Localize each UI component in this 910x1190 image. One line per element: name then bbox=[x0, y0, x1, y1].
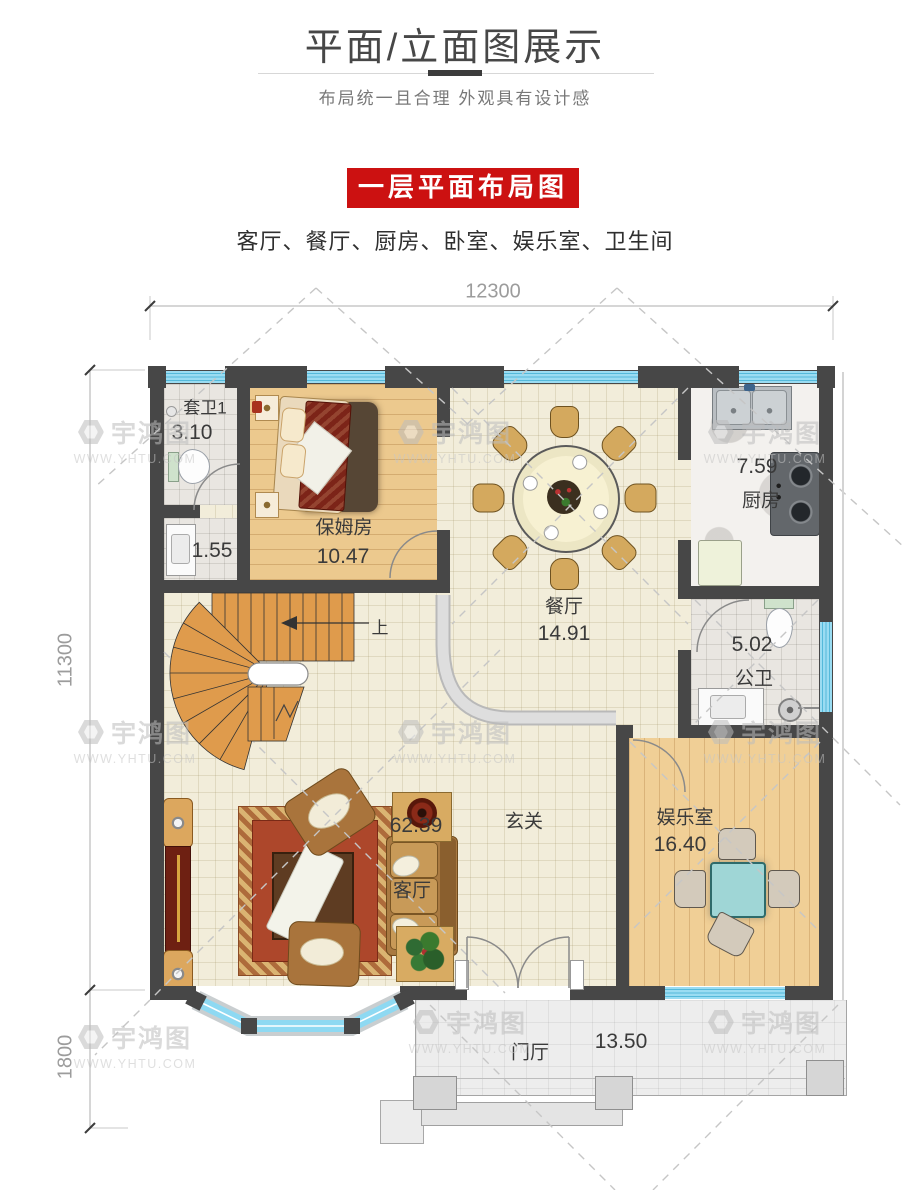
room-list-line: 客厅、餐厅、厨房、卧室、娱乐室、卫生间 bbox=[0, 224, 910, 256]
dining-chair bbox=[550, 558, 579, 590]
porch-column bbox=[413, 1076, 457, 1110]
window-bathroom-right bbox=[820, 622, 832, 712]
wall-pier bbox=[817, 366, 835, 388]
wall-bottom-segment bbox=[150, 986, 196, 1000]
potted-plant bbox=[400, 928, 448, 976]
floor-drain bbox=[166, 406, 177, 417]
watermark-logo-icon bbox=[78, 1024, 104, 1050]
page: 平面/立面图展示 布局统一且合理 外观具有设计感 一层平面布局图 客厅、餐厅、厨… bbox=[0, 0, 910, 1190]
bath-vanity-basin bbox=[710, 695, 746, 719]
porch-column bbox=[595, 1076, 633, 1110]
label-kitchen-area: 7.59 bbox=[737, 455, 778, 479]
porch-column bbox=[806, 1060, 844, 1096]
game-chair bbox=[674, 870, 706, 908]
nightstand bbox=[255, 492, 279, 518]
wall-nanny-dining-lower bbox=[437, 530, 450, 593]
tv-cabinet-cap bbox=[163, 798, 193, 848]
wall-stair-hall-top bbox=[150, 580, 450, 593]
window-top-nanny bbox=[307, 371, 387, 383]
wall-bottom-segment bbox=[785, 986, 833, 1000]
window-game-room-bottom bbox=[665, 987, 785, 999]
watermark-logo-icon bbox=[78, 719, 104, 745]
wash-basin bbox=[171, 534, 190, 564]
wall-ensuite-bottom bbox=[164, 505, 200, 518]
dining-chair bbox=[550, 406, 579, 438]
wall-kitchen-bath bbox=[678, 586, 833, 599]
wall-dining-kitchen-upper bbox=[678, 384, 691, 460]
kitchen-fridge bbox=[698, 540, 742, 586]
dining-chair bbox=[473, 484, 505, 513]
label-bath-name: 公卫 bbox=[735, 664, 773, 691]
label-porch-name: 门厅 bbox=[511, 1038, 549, 1065]
wall-foyer-game bbox=[616, 725, 629, 986]
label-game-area: 16.40 bbox=[654, 833, 707, 857]
label-bath-area: 5.02 bbox=[732, 633, 773, 657]
label-kitchen-name: 厨房 bbox=[742, 486, 780, 513]
wall-ensuite-nanny bbox=[237, 384, 250, 580]
label-living-area: 62.39 bbox=[390, 814, 443, 838]
label-nanny-area: 10.47 bbox=[317, 545, 370, 569]
label-wash-area: 1.55 bbox=[192, 539, 233, 563]
section-banner: 一层平面布局图 bbox=[347, 168, 579, 208]
wall-pier bbox=[225, 366, 307, 388]
wall-decor bbox=[252, 401, 262, 413]
label-dining-name: 餐厅 bbox=[545, 592, 583, 619]
wall-pier bbox=[148, 366, 166, 388]
label-stairs-up: 上 bbox=[372, 614, 389, 639]
bed-pillow bbox=[279, 407, 306, 443]
door-frame-post bbox=[570, 960, 584, 990]
dining-chair bbox=[625, 484, 657, 513]
game-chair bbox=[768, 870, 800, 908]
wall-pier bbox=[638, 366, 739, 388]
watermark: 宇鸿图WWW.YHTU.COM bbox=[74, 1019, 197, 1071]
shower-arm bbox=[798, 707, 819, 709]
label-porch-area: 13.50 bbox=[595, 1030, 648, 1054]
bed-pillow bbox=[279, 443, 306, 479]
label-dining-area: 14.91 bbox=[538, 622, 591, 646]
label-game-name: 娱乐室 bbox=[656, 803, 713, 830]
window-top-dining bbox=[504, 371, 640, 383]
window-top-ensuite bbox=[164, 371, 227, 383]
tv-cabinet-body bbox=[165, 846, 191, 952]
label-ensuite-name: 套卫1 bbox=[183, 394, 226, 419]
label-foyer-name: 玄关 bbox=[505, 807, 543, 834]
mahjong-table bbox=[710, 862, 766, 918]
game-chair bbox=[718, 828, 756, 860]
label-ensuite-area: 3.10 bbox=[172, 421, 213, 445]
label-nanny-name: 保姆房 bbox=[315, 513, 372, 540]
dim-side-height: 11300 bbox=[55, 633, 78, 687]
door-frame-post bbox=[455, 960, 469, 990]
wall-left bbox=[150, 370, 164, 1000]
wall-nanny-dining-upper bbox=[437, 384, 450, 437]
kitchen-faucet bbox=[744, 384, 755, 391]
dim-top-width: 12300 bbox=[465, 281, 521, 304]
shower-head bbox=[778, 698, 802, 722]
window-top-kitchen bbox=[739, 371, 819, 383]
dining-centerpiece bbox=[547, 480, 581, 514]
dim-porch-height: 1800 bbox=[55, 1035, 78, 1080]
kitchen-sink-bowl bbox=[716, 390, 751, 425]
page-subtitle: 布局统一且合理 外观具有设计感 bbox=[0, 84, 910, 109]
wall-bottom-segment bbox=[570, 986, 665, 1000]
watermark-logo-icon bbox=[78, 419, 104, 445]
title-divider-accent bbox=[428, 70, 482, 76]
label-living-name: 客厅 bbox=[393, 876, 431, 903]
wall-bath-game bbox=[685, 725, 833, 738]
page-title: 平面/立面图展示 bbox=[0, 16, 910, 71]
kitchen-sink-bowl bbox=[752, 390, 787, 425]
bay-window bbox=[185, 989, 415, 1034]
wall-pier bbox=[385, 366, 504, 388]
